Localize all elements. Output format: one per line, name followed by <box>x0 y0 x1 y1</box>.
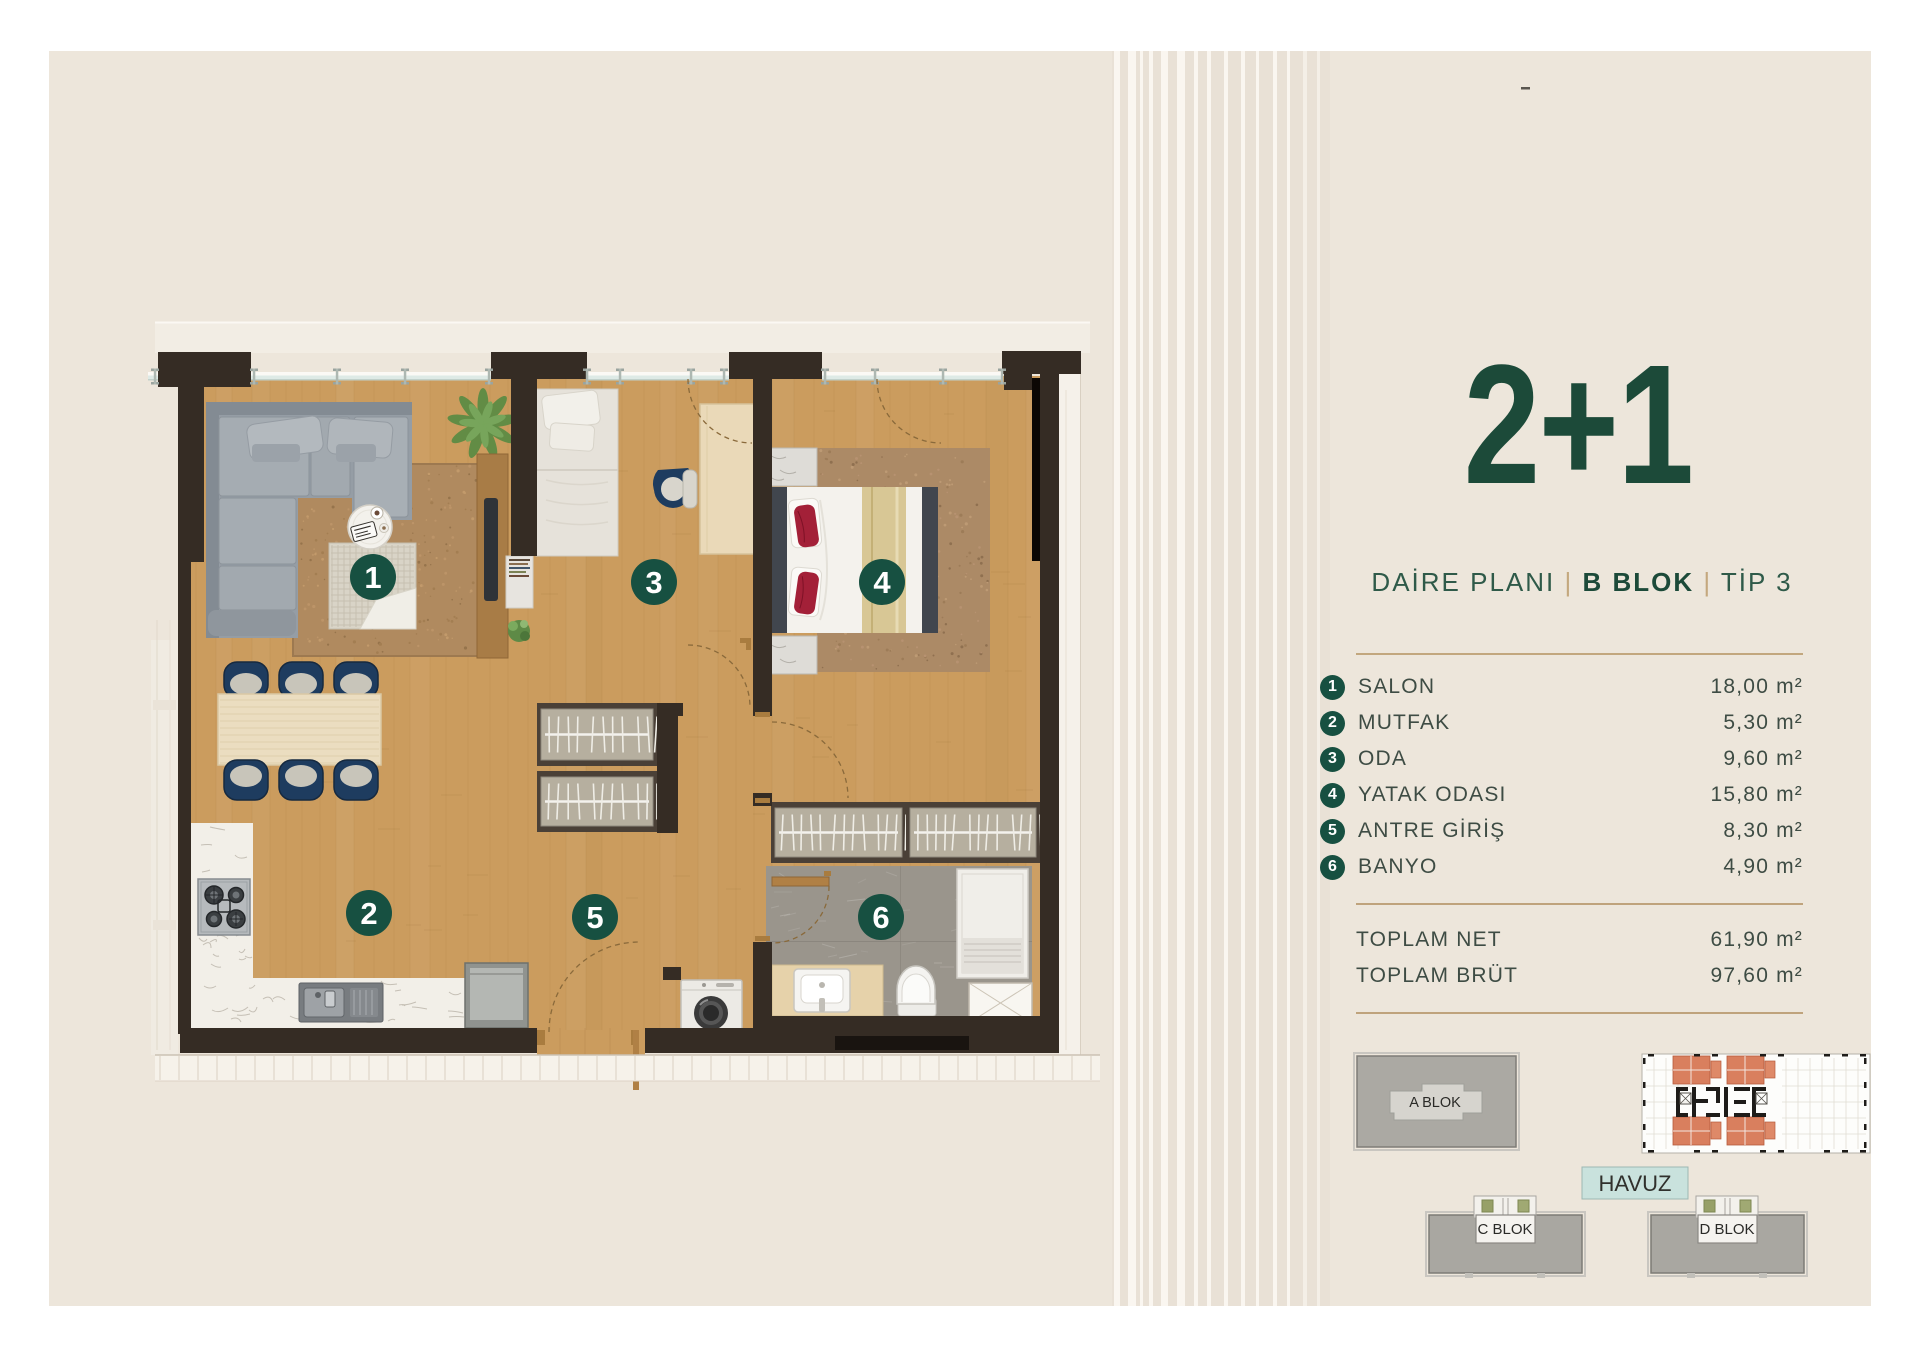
svg-text:1: 1 <box>364 560 381 595</box>
svg-text:A BLOK: A BLOK <box>1409 1095 1461 1111</box>
svg-text:4: 4 <box>873 565 891 600</box>
svg-text:6: 6 <box>872 900 889 935</box>
svg-text:D BLOK: D BLOK <box>1699 1221 1754 1238</box>
svg-text:C BLOK: C BLOK <box>1477 1221 1532 1238</box>
svg-text:3: 3 <box>645 565 662 600</box>
svg-text:5: 5 <box>586 900 603 935</box>
svg-text:HAVUZ: HAVUZ <box>1599 1171 1672 1196</box>
svg-text:2: 2 <box>360 896 377 931</box>
